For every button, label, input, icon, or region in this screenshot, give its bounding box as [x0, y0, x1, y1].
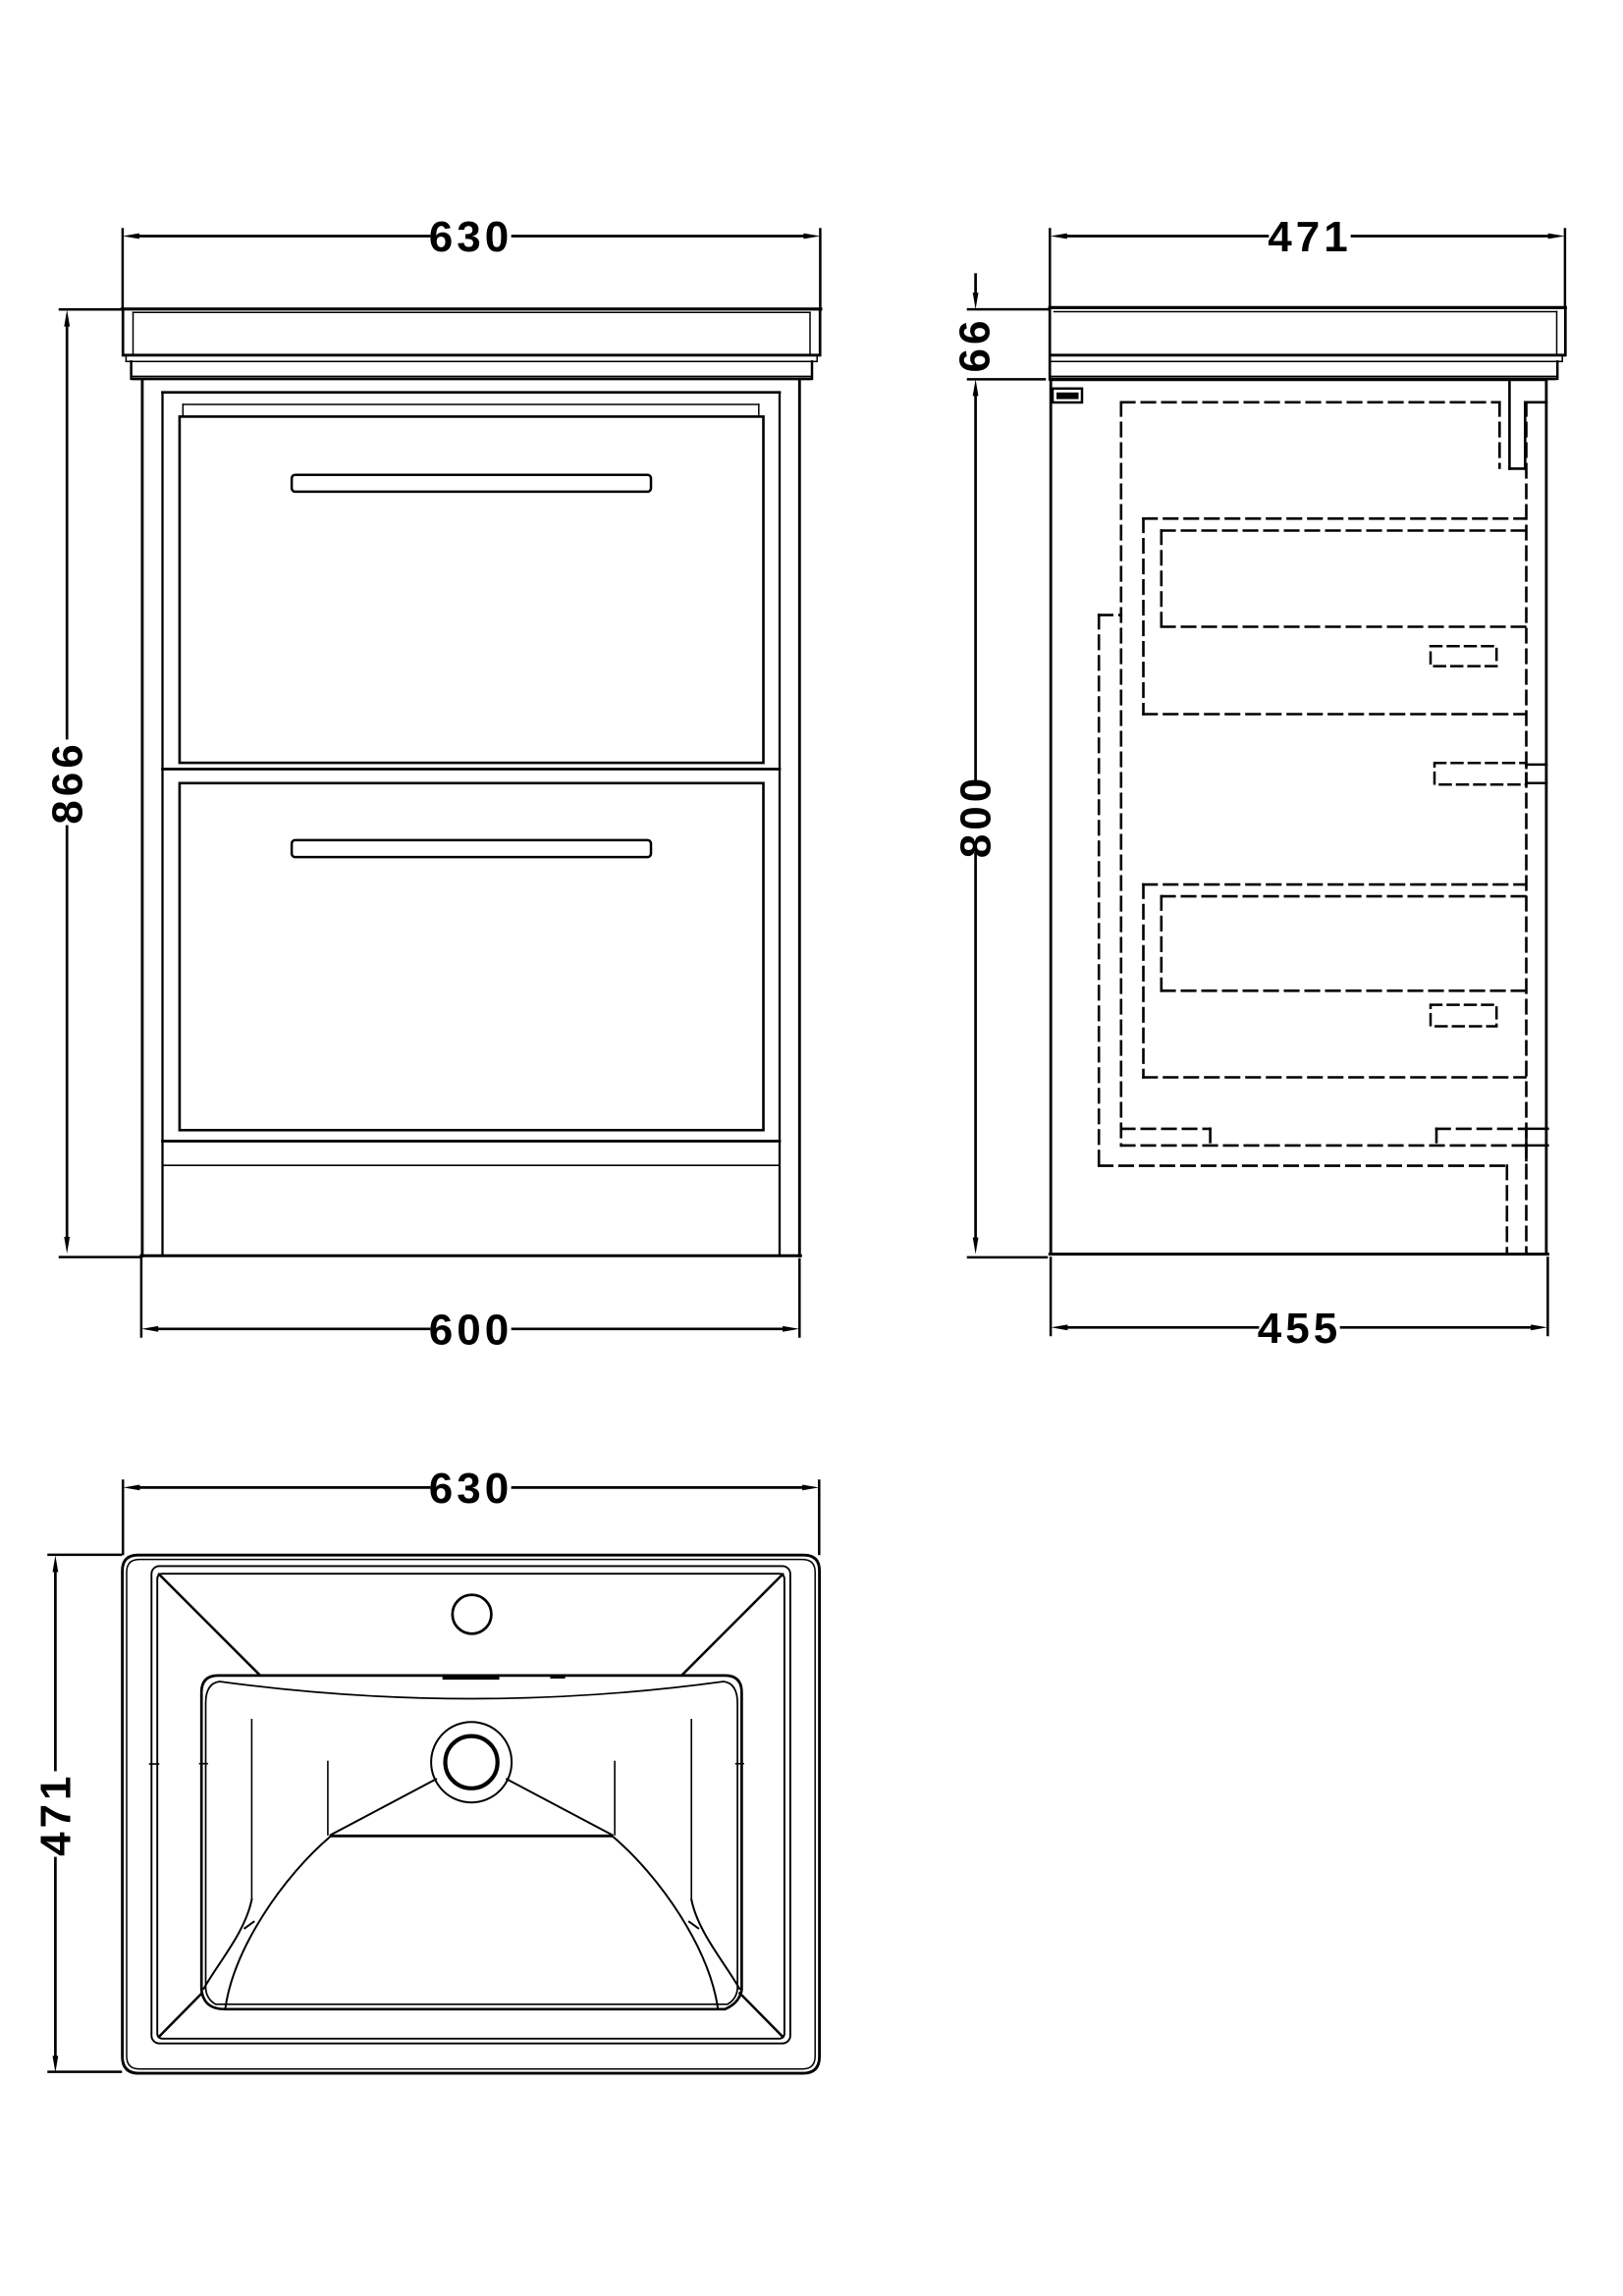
svg-text:600: 600 [429, 1306, 513, 1354]
svg-text:866: 866 [44, 740, 92, 824]
svg-text:800: 800 [952, 774, 1001, 858]
svg-text:471: 471 [32, 1772, 81, 1855]
svg-text:471: 471 [1268, 213, 1351, 261]
svg-text:455: 455 [1258, 1305, 1341, 1353]
svg-text:66: 66 [951, 317, 1000, 373]
svg-text:630: 630 [429, 1465, 513, 1513]
svg-text:630: 630 [429, 213, 513, 261]
